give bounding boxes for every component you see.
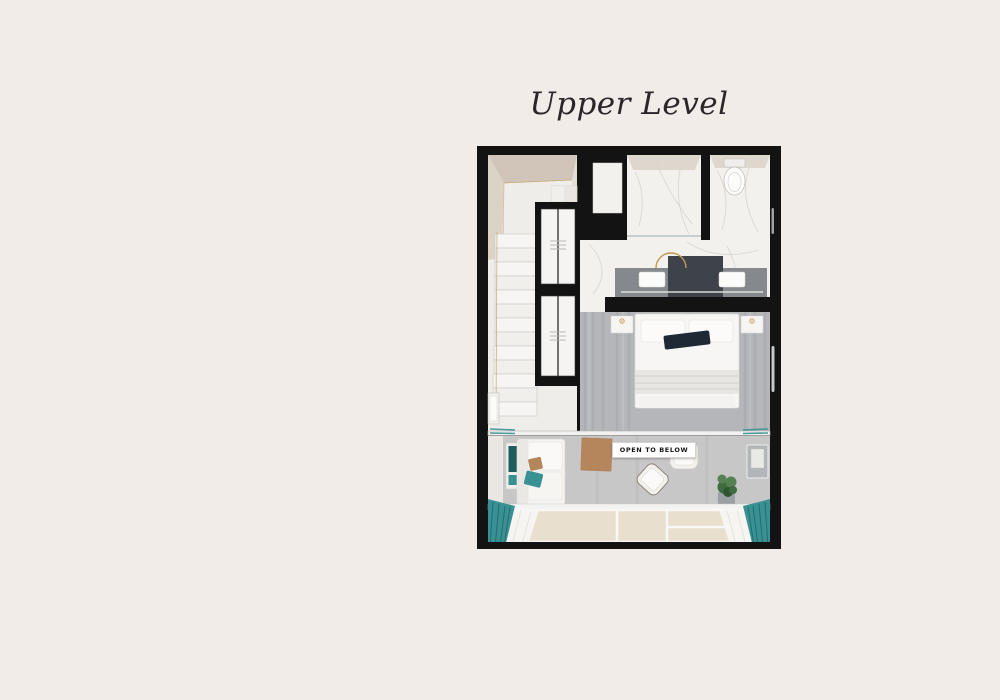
nightstand-right (741, 316, 763, 333)
alcove-cabinet (593, 163, 622, 213)
floor-plan-drawing (477, 146, 781, 549)
console (747, 445, 768, 478)
plant (718, 475, 738, 505)
window-wall (477, 499, 781, 549)
sofa (517, 439, 565, 505)
page-title: Upper Level (477, 86, 781, 122)
open-to-below-label: OPEN TO BELOW (612, 442, 696, 458)
page-background: Upper Level (0, 0, 1000, 700)
towel-rail (772, 208, 775, 234)
bed (635, 314, 739, 408)
door-niche (488, 393, 499, 424)
staircase (492, 232, 537, 416)
nightstand-left (611, 316, 633, 333)
door-handle (772, 346, 775, 392)
sink-left (639, 272, 665, 287)
wardrobe (535, 202, 580, 386)
bedroom (580, 312, 770, 432)
toilet-icon (724, 159, 745, 195)
sink-right (719, 272, 745, 287)
toilet-room (710, 155, 770, 240)
floor-plan: OPEN TO BELOW (477, 146, 781, 549)
bed-headboard-wall (605, 297, 770, 312)
open-to-below-text: OPEN TO BELOW (620, 446, 688, 454)
tan-rug (580, 437, 612, 471)
shower-room (627, 155, 701, 240)
